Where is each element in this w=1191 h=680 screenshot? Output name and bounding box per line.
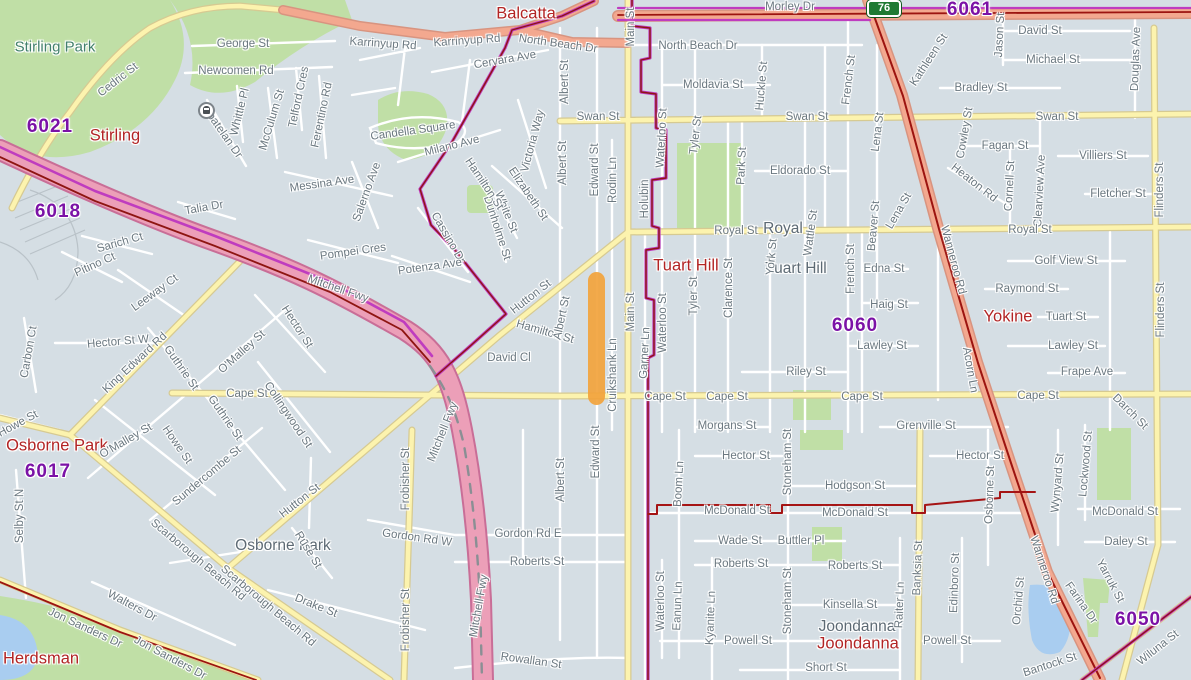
highlighted-street-segment[interactable] (588, 272, 605, 405)
route-shield-icon: 76 (867, 0, 901, 17)
map-canvas[interactable]: Stirling ParkBalcattaStirlingTuart HillY… (0, 0, 1191, 680)
train-station-icon[interactable] (198, 102, 215, 119)
